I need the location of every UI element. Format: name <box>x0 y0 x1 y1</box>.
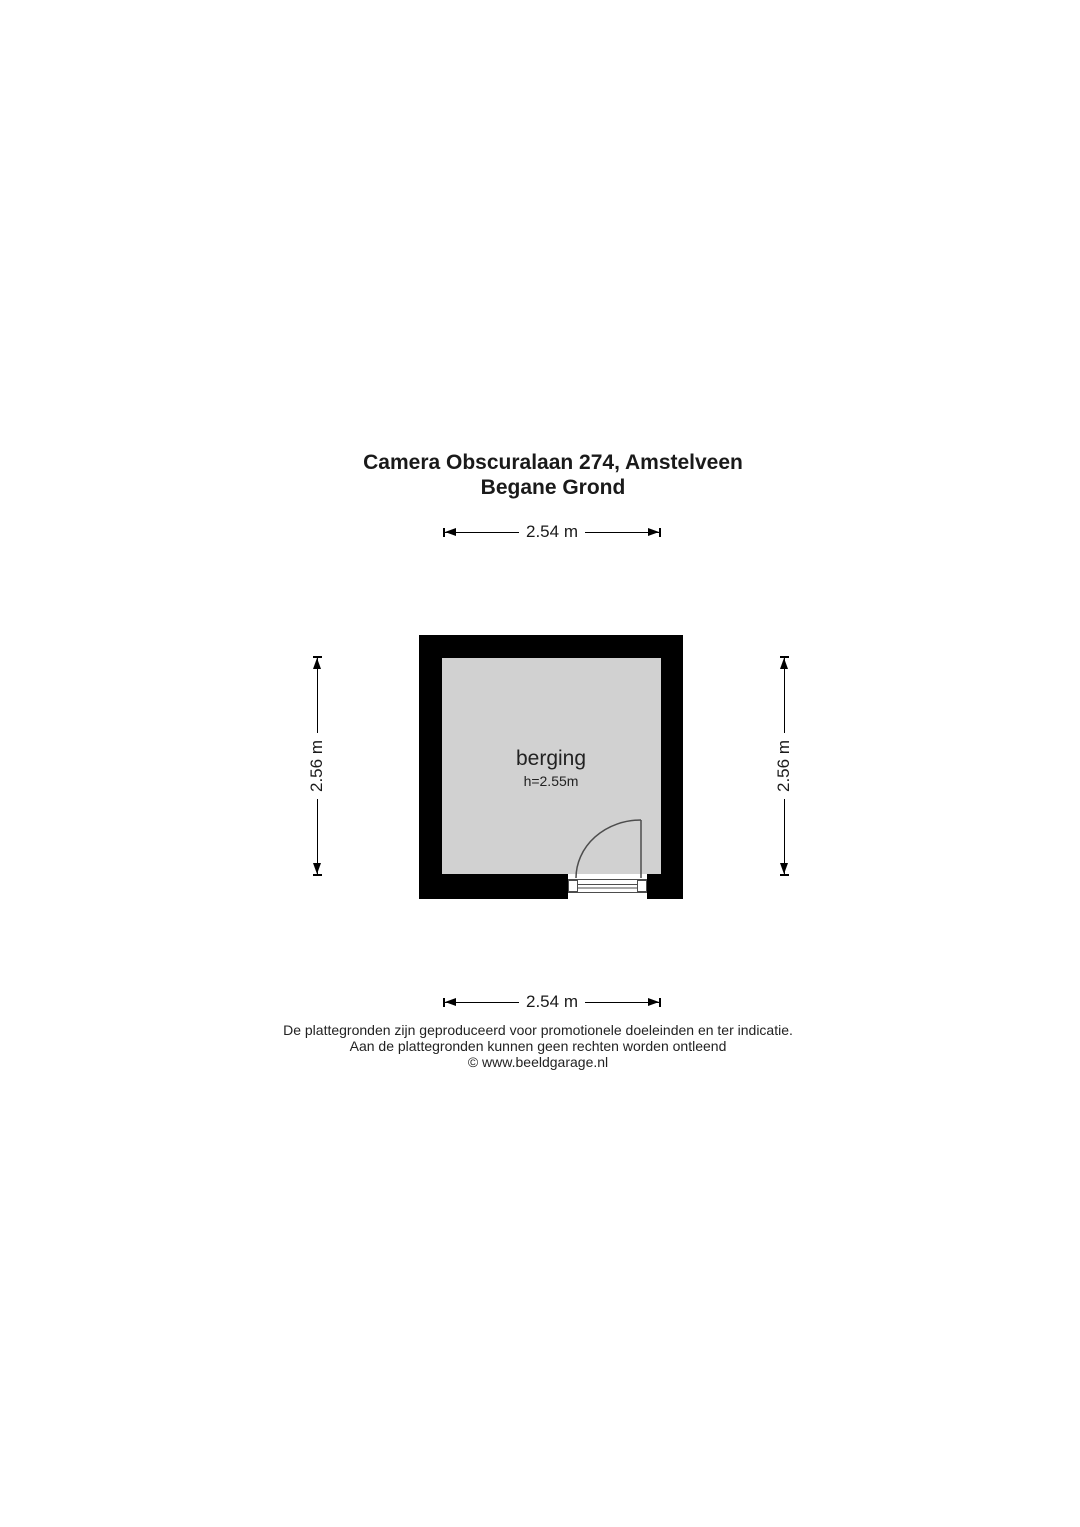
floorplan-page: Camera Obscuralaan 274, Amstelveen Began… <box>0 0 1080 1527</box>
floorplan-level: Begane Grond <box>363 475 743 500</box>
arrowhead-up-icon <box>313 658 321 669</box>
dimension-left: 2.56 m <box>309 656 326 876</box>
dimension-label: 2.54 m <box>519 522 585 542</box>
arrowhead-right-icon <box>648 998 659 1006</box>
dimension-label: 2.56 m <box>774 733 794 799</box>
dimension-end-tick <box>780 874 789 876</box>
page-title: Camera Obscuralaan 274, Amstelveen Began… <box>363 450 743 500</box>
arrowhead-left-icon <box>445 998 456 1006</box>
dimension-end-tick <box>659 528 661 537</box>
dimension-right: 2.56 m <box>776 656 793 876</box>
dimension-label: 2.56 m <box>307 733 327 799</box>
dimension-end-tick <box>313 874 322 876</box>
arrowhead-up-icon <box>780 658 788 669</box>
disclaimer-line-1: De plattegronden zijn geproduceerd voor … <box>283 1022 793 1038</box>
dimension-end-tick <box>659 998 661 1007</box>
arrowhead-left-icon <box>445 528 456 536</box>
dimension-label: 2.54 m <box>519 992 585 1012</box>
dimension-top: 2.54 m <box>443 524 661 541</box>
arrowhead-right-icon <box>648 528 659 536</box>
floorplan-address: Camera Obscuralaan 274, Amstelveen <box>363 450 743 475</box>
dimension-bottom: 2.54 m <box>443 994 661 1011</box>
room-label: berging <box>516 746 586 771</box>
arrowhead-down-icon <box>313 863 321 874</box>
copyright-line: © www.beeldgarage.nl <box>283 1054 793 1070</box>
arrowhead-down-icon <box>780 863 788 874</box>
room-height-label: h=2.55m <box>524 773 579 789</box>
footer-disclaimer: De plattegronden zijn geproduceerd voor … <box>283 1022 793 1070</box>
disclaimer-line-2: Aan de plattegronden kunnen geen rechten… <box>283 1038 793 1054</box>
